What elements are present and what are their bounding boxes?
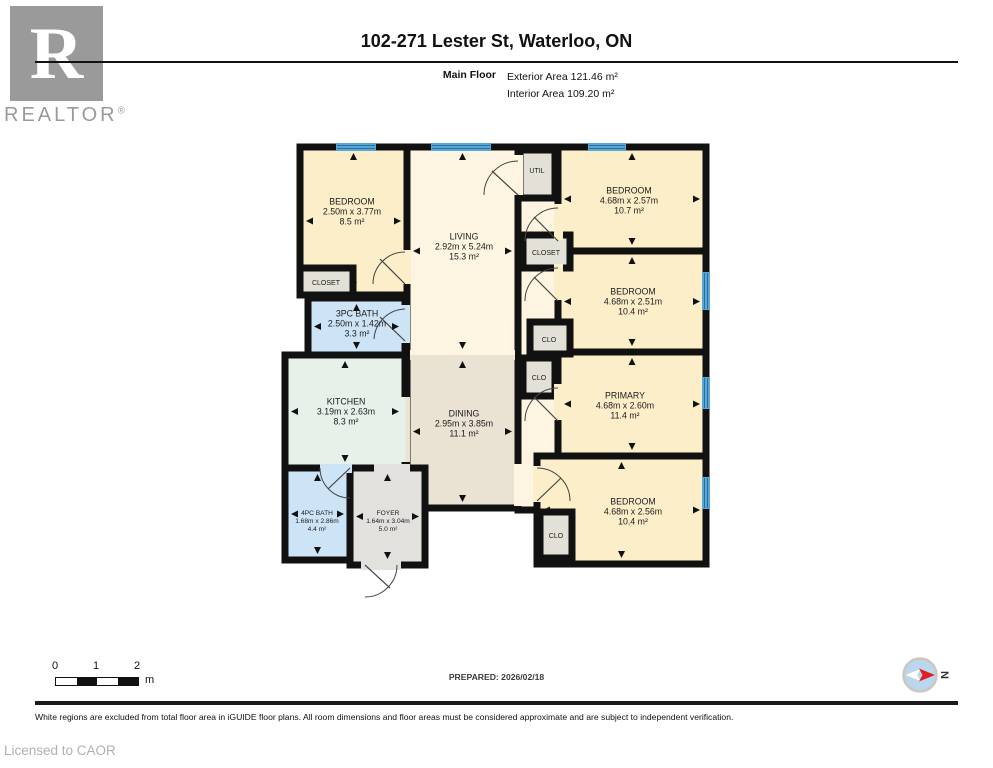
room-label: CLO xyxy=(549,533,564,540)
room-label: 11.4 m² xyxy=(610,410,639,420)
room-label: BEDROOM xyxy=(606,185,651,195)
disclaimer-text: White regions are excluded from total fl… xyxy=(35,712,958,722)
room-label: 2.92m x 5.24m xyxy=(435,241,493,251)
room-label: KITCHEN xyxy=(327,396,366,406)
door-opening xyxy=(320,464,352,473)
title-divider xyxy=(35,61,958,63)
room-label: BEDROOM xyxy=(610,496,655,506)
room-label: 5.0 m² xyxy=(379,526,398,533)
room-label: FOYER xyxy=(377,510,400,517)
window-icon xyxy=(702,477,710,509)
room-label: CLOSET xyxy=(312,280,341,287)
room-label: CLO xyxy=(532,375,547,382)
room-label: 2.50m x 1.42m xyxy=(328,318,386,328)
scale-label-0: 0 xyxy=(47,660,63,672)
room-label: 3.3 m² xyxy=(345,328,370,338)
room-label: 8.3 m² xyxy=(334,416,359,426)
door-opening xyxy=(514,464,523,506)
room-label: 1.64m x 3.04m xyxy=(366,518,410,525)
compass-north-label: N xyxy=(938,671,950,679)
room-label: LIVING xyxy=(450,231,479,241)
door-opening xyxy=(402,250,411,284)
room-label: PRIMARY xyxy=(605,390,645,400)
scale-label-1: 1 xyxy=(88,660,104,672)
room-label: 4.68m x 2.51m xyxy=(604,296,662,306)
room-label: 4.4 m² xyxy=(308,526,327,533)
room-label: 4.68m x 2.57m xyxy=(600,195,658,205)
room-label: CLO xyxy=(542,337,557,344)
door-opening xyxy=(406,397,411,462)
door-opening xyxy=(361,561,401,570)
room-label: 4.68m x 2.56m xyxy=(604,506,662,516)
door-opening xyxy=(410,350,515,355)
footer-divider xyxy=(35,701,958,705)
room-label: 11.1 m² xyxy=(449,428,478,438)
door-opening xyxy=(374,464,410,473)
door-opening xyxy=(554,204,563,240)
room-label: 4.68m x 2.60m xyxy=(596,400,654,410)
room-label: UTIL xyxy=(529,168,544,175)
door-opening xyxy=(554,264,563,300)
room-label: CLOSET xyxy=(532,250,561,257)
room-label: 15.3 m² xyxy=(449,251,479,261)
scale-label-2: 2 xyxy=(129,660,145,672)
compass-icon: N xyxy=(893,653,957,699)
door-opening xyxy=(554,384,563,420)
window-icon xyxy=(588,143,626,151)
room-label: 2.95m x 3.85m xyxy=(435,418,493,428)
room-label: BEDROOM xyxy=(329,196,374,206)
room-label: 3.19m x 2.63m xyxy=(317,406,375,416)
room-label: 10.7 m² xyxy=(614,205,644,215)
room-label: 8.5 m² xyxy=(340,216,365,226)
floorplan-svg: LIVING2.92m x 5.24m15.3 m²DINING2.95m x … xyxy=(0,0,993,768)
window-icon xyxy=(702,272,710,310)
room-label: DINING xyxy=(449,408,480,418)
room-label: 3PC BATH xyxy=(336,308,378,318)
window-icon xyxy=(702,377,710,409)
room-label: 10.4 m² xyxy=(618,516,648,526)
room-label: 4PC BATH xyxy=(301,510,333,517)
room-label: 10.4 m² xyxy=(618,306,648,316)
room-label: 1.68m x 2.86m xyxy=(295,518,339,525)
prepared-date: PREPARED: 2026/02/18 xyxy=(0,672,993,682)
door-opening xyxy=(401,397,406,462)
floorplan-page: R REALTOR® 102-271 Lester St, Waterloo, … xyxy=(0,0,993,768)
licensed-text: Licensed to CAOR xyxy=(4,743,116,758)
room-label: 2.50m x 3.77m xyxy=(323,206,381,216)
door-opening xyxy=(401,305,410,343)
door-opening xyxy=(533,466,542,502)
window-icon xyxy=(336,143,376,151)
door-opening xyxy=(410,355,515,360)
room-label: BEDROOM xyxy=(610,286,655,296)
window-icon xyxy=(431,143,491,151)
